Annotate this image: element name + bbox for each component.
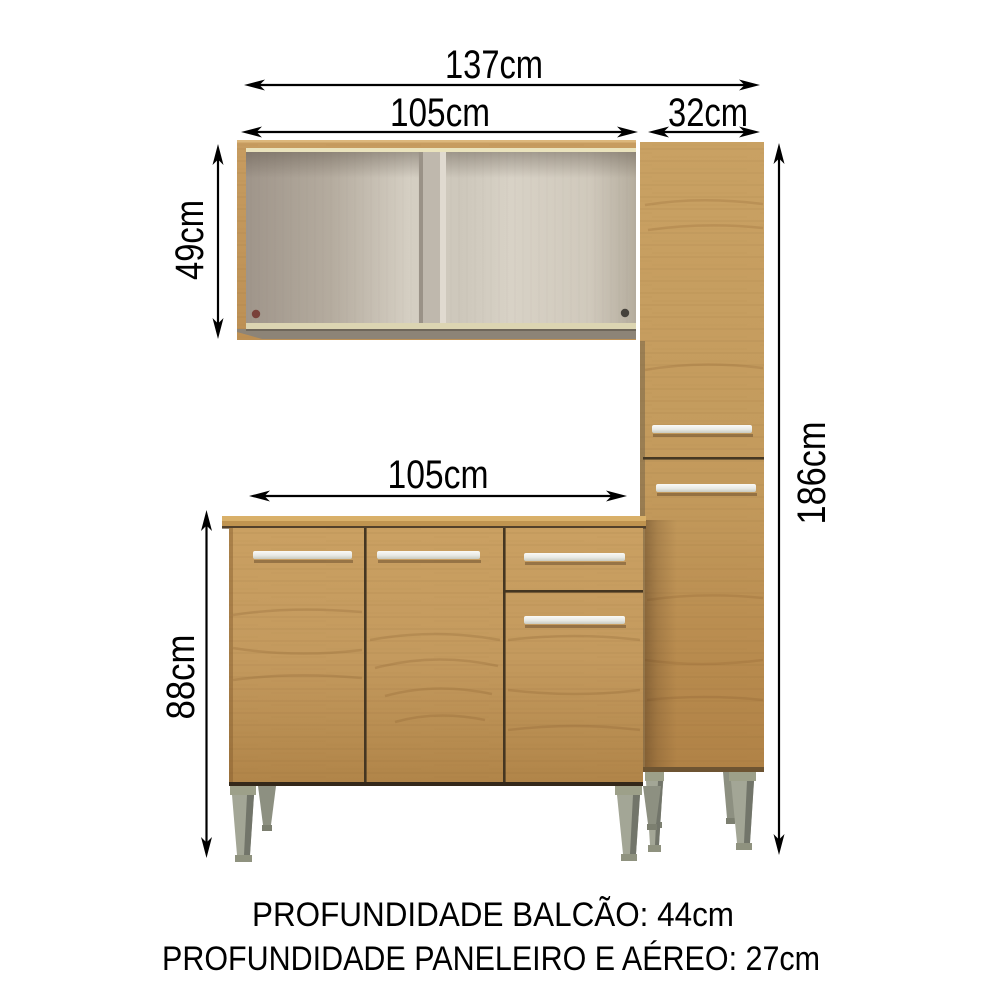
svg-text:PROFUNDIDADE PANELEIRO E AÉREO: PROFUNDIDADE PANELEIRO E AÉREO: 27cm bbox=[162, 940, 820, 978]
svg-text:PROFUNDIDADE BALCÃO: 44cm: PROFUNDIDADE BALCÃO: 44cm bbox=[252, 896, 734, 934]
svg-text:186cm: 186cm bbox=[790, 422, 834, 525]
svg-text:105cm: 105cm bbox=[390, 91, 490, 135]
svg-text:49cm: 49cm bbox=[168, 200, 212, 280]
svg-text:137cm: 137cm bbox=[445, 43, 543, 87]
svg-text:32cm: 32cm bbox=[668, 91, 748, 135]
svg-text:88cm: 88cm bbox=[159, 635, 203, 720]
svg-text:105cm: 105cm bbox=[388, 453, 489, 497]
